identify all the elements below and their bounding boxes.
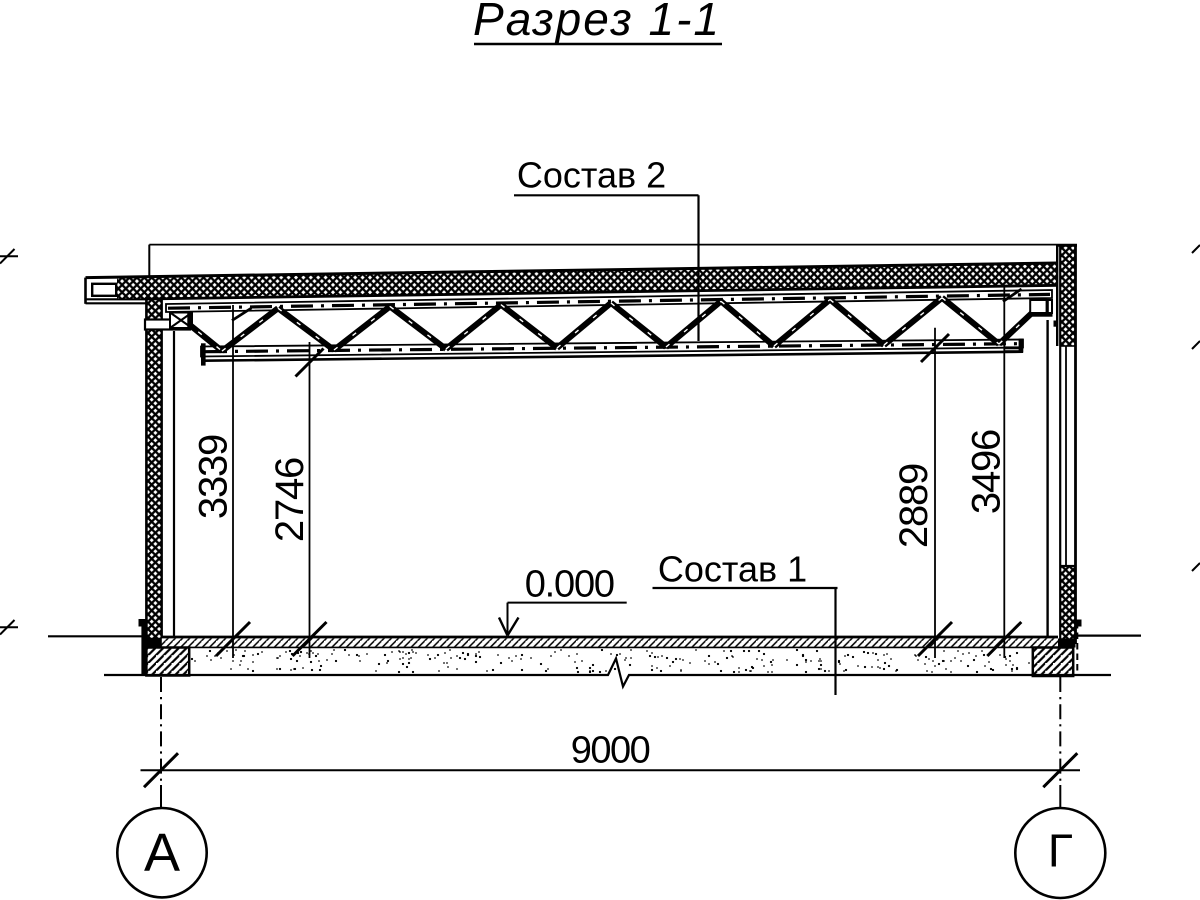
svg-text:2889: 2889 — [892, 464, 936, 548]
svg-text:Разрез 1-1: Разрез 1-1 — [473, 0, 721, 45]
svg-text:0.000: 0.000 — [525, 564, 614, 606]
svg-text:2746: 2746 — [268, 458, 312, 542]
svg-text:Состав 1: Состав 1 — [658, 549, 807, 590]
svg-text:9000: 9000 — [571, 730, 650, 772]
svg-text:Состав 2: Состав 2 — [517, 155, 666, 196]
svg-text:3339: 3339 — [192, 435, 236, 519]
svg-text:Г: Г — [1048, 825, 1073, 877]
svg-text:3496: 3496 — [965, 430, 1009, 514]
svg-text:А: А — [144, 823, 180, 883]
